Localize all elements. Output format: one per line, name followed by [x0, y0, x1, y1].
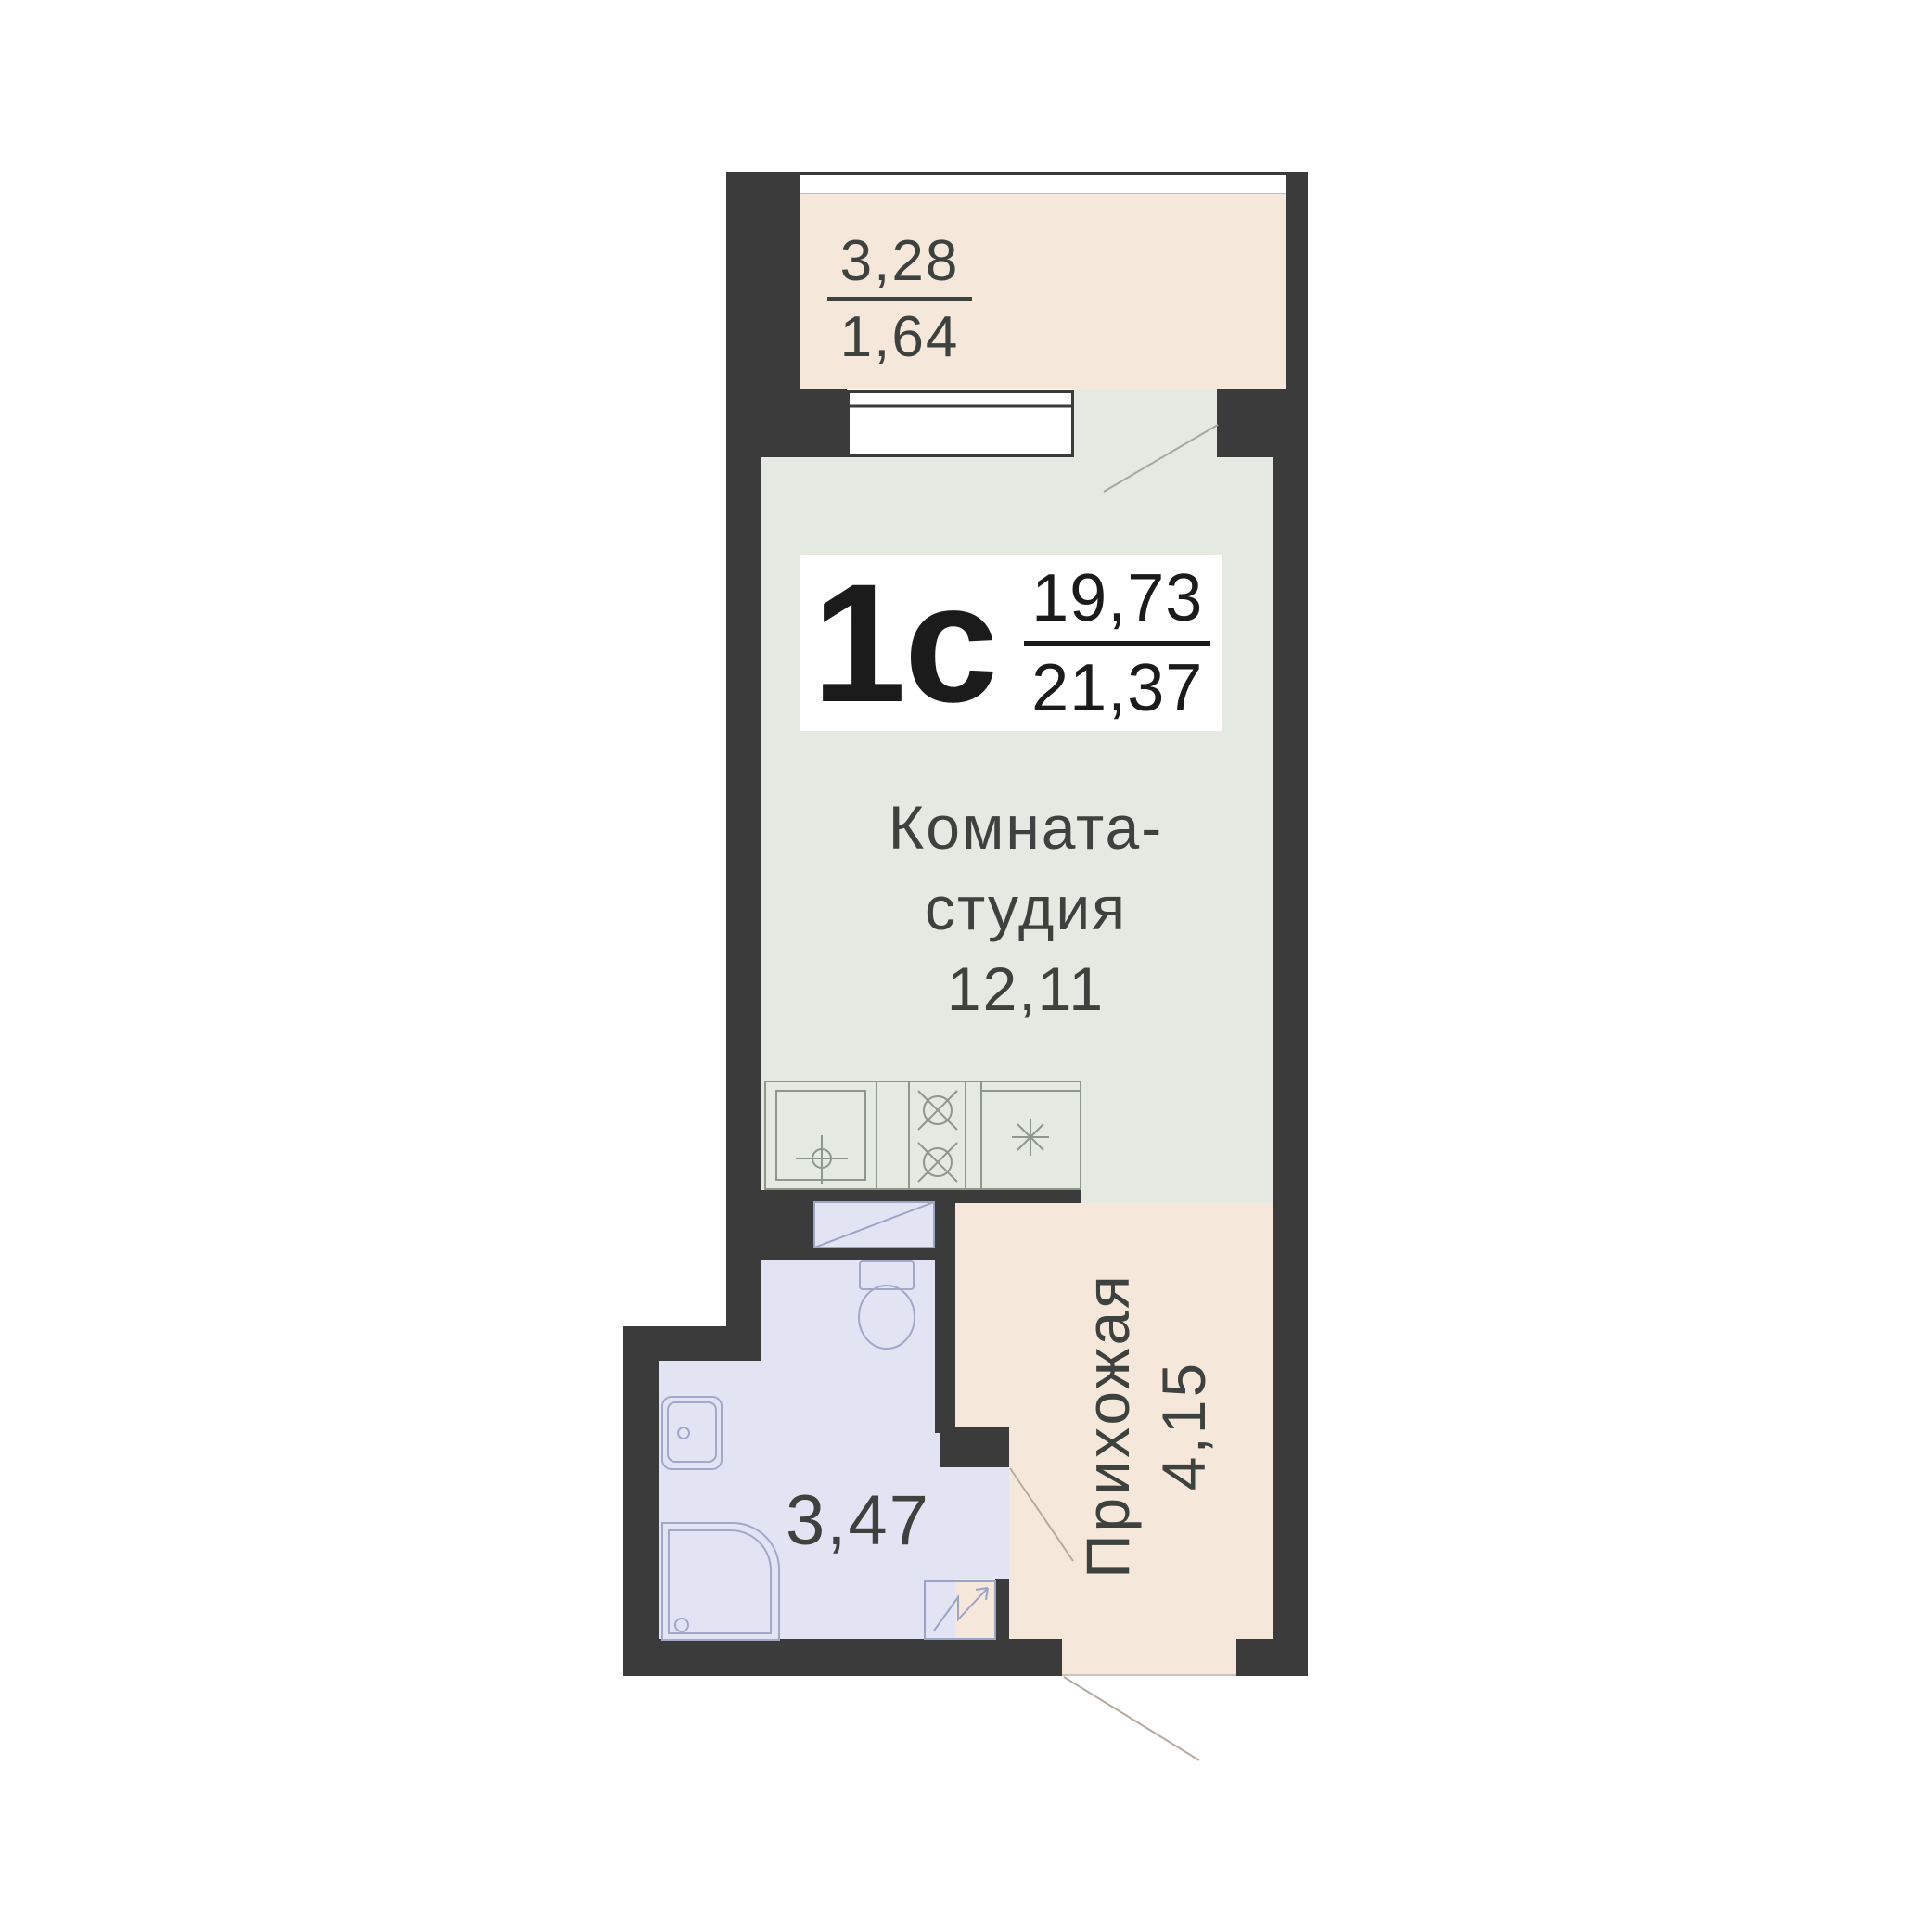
wall-right-outer	[1273, 457, 1308, 1676]
wall-room-hallway-strip	[955, 1190, 1081, 1203]
balcony-glazing	[800, 172, 1286, 194]
entrance-door-swing	[1064, 1677, 1199, 1760]
bathroom-floor-door-bay	[955, 1467, 1009, 1579]
wall-left-outer	[726, 457, 761, 1326]
wall-entrance-right-block	[1236, 1639, 1308, 1676]
entrance-door-threshold-floor	[1062, 1639, 1236, 1676]
studio-room-area: 12,11	[794, 949, 1258, 1030]
floor-plan: 3,28 1,64 1с 19,73 21,37 Комната- студия…	[0, 0, 1932, 1932]
wall-window-pier-left	[726, 389, 847, 457]
studio-room-name-line1: Комната-	[794, 787, 1258, 868]
wall-right-balcony	[1286, 172, 1308, 389]
unit-area-fraction: 19,73 21,37	[1024, 565, 1210, 722]
unit-type-label: 1с	[812, 558, 996, 727]
room-window	[847, 390, 1074, 457]
unit-area-living: 19,73	[1024, 565, 1210, 646]
wall-left-lower-outer	[623, 1361, 659, 1676]
studio-room-label: Комната- студия 12,11	[794, 787, 1258, 1030]
balcony-area-full: 3,28	[827, 232, 973, 301]
unit-area-total: 21,37	[1024, 655, 1210, 722]
unit-label-box: 1с 19,73 21,37	[800, 555, 1222, 731]
wall-kitchen-bathroom	[761, 1190, 955, 1260]
hallway-label: Прихожая 4,15	[1069, 1231, 1218, 1620]
balcony-area-label: 3,28 1,64	[788, 232, 1011, 367]
bathroom-area-label: 3,47	[774, 1480, 941, 1561]
wall-bathroom-door-block	[940, 1427, 1009, 1467]
wall-bottom	[623, 1639, 1062, 1676]
hallway-area: 4,15	[1145, 1231, 1222, 1620]
wall-right-window-block	[1217, 389, 1308, 457]
studio-room-name-line2: студия	[794, 868, 1258, 949]
wall-left-step	[623, 1326, 761, 1361]
balcony-area-reduced: 1,64	[788, 308, 1011, 367]
bathroom-floor-upper	[761, 1260, 935, 1361]
wall-bathroom-hallway	[935, 1260, 955, 1433]
studio-room-floor-strip	[1081, 1190, 1273, 1203]
hallway-name: Прихожая	[1069, 1231, 1145, 1620]
studio-room-floor-window-strip	[1074, 389, 1217, 457]
wall-bathroom-door-jamb	[995, 1579, 1009, 1639]
